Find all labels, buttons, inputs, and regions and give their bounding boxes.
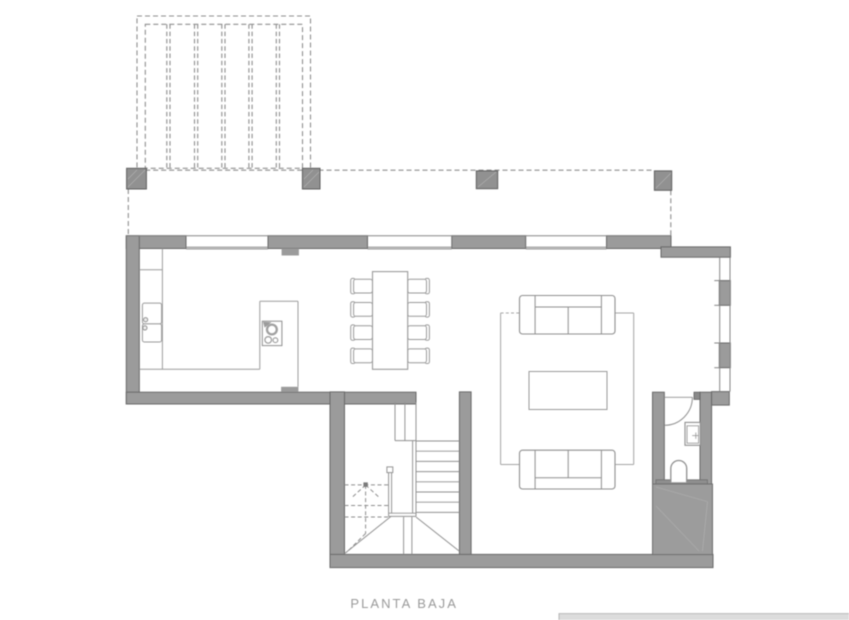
svg-text:PLANTA BAJA: PLANTA BAJA: [350, 596, 458, 611]
